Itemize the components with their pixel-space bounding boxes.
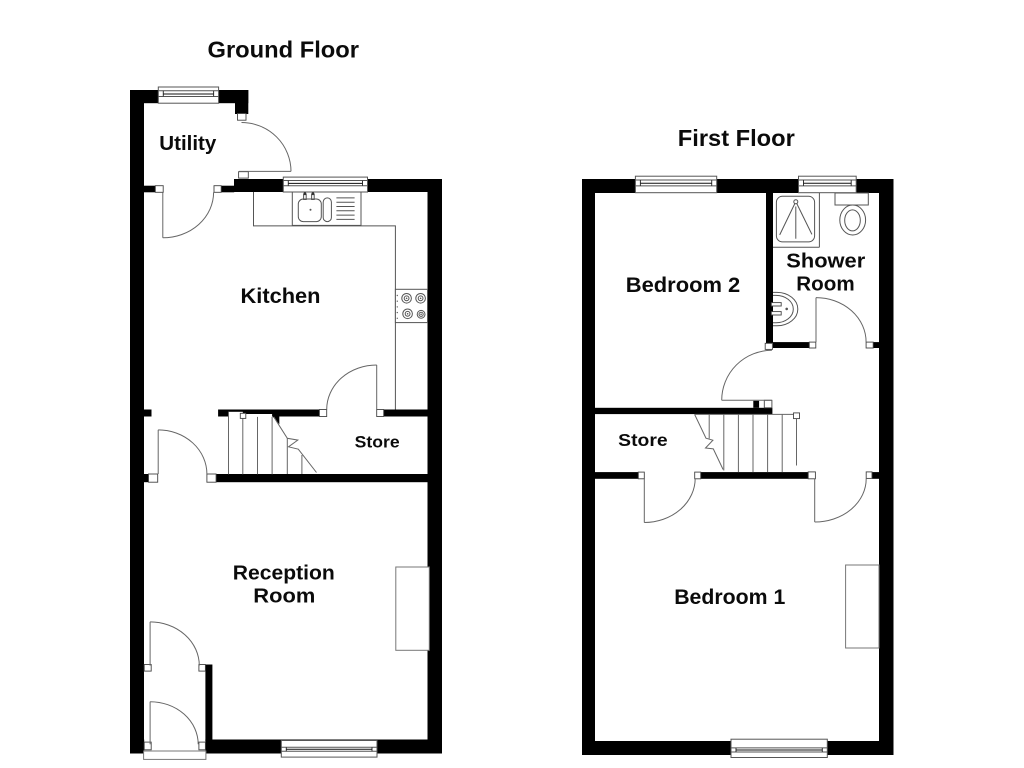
svg-text:Bedroom 2: Bedroom 2 [626,273,740,297]
svg-text:Room: Room [796,273,854,296]
svg-text:Shower: Shower [786,250,865,273]
svg-text:Store: Store [355,433,400,452]
svg-text:Utility: Utility [159,133,217,155]
svg-text:Ground Floor: Ground Floor [208,36,360,62]
svg-text:Store: Store [618,430,668,450]
svg-text:Reception: Reception [233,561,335,584]
svg-text:Bedroom 1: Bedroom 1 [674,585,785,609]
svg-text:Kitchen: Kitchen [241,285,321,308]
svg-text:First Floor: First Floor [678,125,795,151]
svg-text:Room: Room [253,584,315,607]
